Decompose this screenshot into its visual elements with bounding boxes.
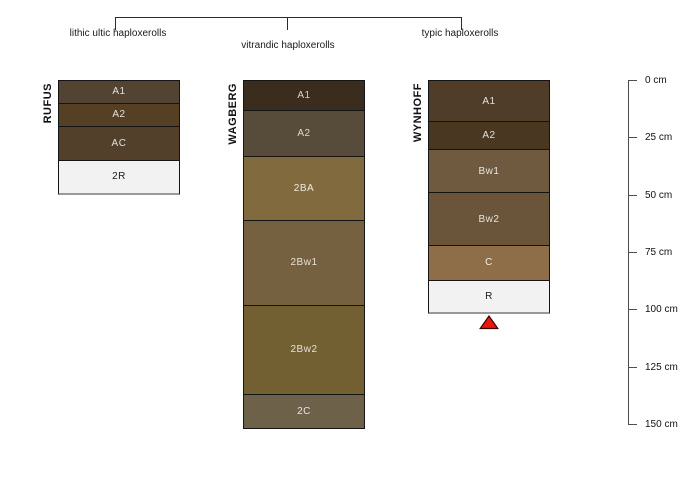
depth-axis-tick-label: 50 cm — [645, 191, 672, 201]
horizon-rufus-a2: A2 — [58, 103, 180, 126]
bracket-tick-middle — [287, 17, 288, 30]
taxon-label-vitrandic-haploxerolls: vitrandic haploxerolls — [241, 40, 334, 51]
horizon-label: A1 — [112, 86, 125, 97]
horizon-rufus-ac: AC — [58, 126, 180, 160]
taxon-label-lithic-ultic-haploxerolls: lithic ultic haploxerolls — [70, 28, 167, 39]
profile-name-wynhoff: WYNHOFF — [412, 79, 426, 149]
horizon-label: Bw2 — [479, 214, 500, 225]
horizon-label: A2 — [112, 109, 125, 120]
depth-axis-tick — [628, 424, 637, 425]
horizon-label: AC — [112, 138, 127, 149]
horizon-label: 2Bw1 — [290, 257, 317, 268]
horizon-wynhoff-bw2: Bw2 — [428, 192, 550, 245]
horizon-label: A2 — [482, 130, 495, 141]
profile-name-label: WYNHOFF — [412, 83, 424, 142]
bracket-horizontal-line — [115, 17, 462, 18]
pedon-marker-triangle-icon — [479, 315, 499, 330]
horizon-wynhoff-a1: A1 — [428, 80, 550, 121]
depth-axis-tick-label: 150 cm — [645, 420, 678, 430]
horizon-wynhoff-c: C — [428, 245, 550, 279]
depth-axis-tick-label: 125 cm — [645, 363, 678, 373]
horizon-label: C — [485, 257, 493, 268]
horizon-wynhoff-bw1: Bw1 — [428, 149, 550, 193]
horizon-wagberg-2bw2: 2Bw2 — [243, 305, 365, 394]
horizon-wagberg-a2: A2 — [243, 110, 365, 156]
horizon-label: 2C — [297, 406, 311, 417]
profile-name-wagberg: WAGBERG — [227, 79, 241, 149]
depth-axis-tick — [628, 195, 637, 196]
horizon-rufus-2r: 2R — [58, 160, 180, 194]
horizon-wagberg-2ba: 2BA — [243, 156, 365, 220]
depth-axis-tick — [628, 367, 637, 368]
horizon-label: A1 — [297, 90, 310, 101]
depth-axis-tick — [628, 252, 637, 253]
depth-axis-tick — [628, 137, 637, 138]
depth-axis-tick — [628, 80, 637, 81]
profile-name-label: RUFUS — [42, 83, 54, 123]
horizon-label: 2Bw2 — [290, 344, 317, 355]
horizon-wynhoff-r: R — [428, 280, 550, 314]
profile-name-rufus: RUFUS — [42, 79, 56, 149]
horizon-wagberg-2c: 2C — [243, 394, 365, 428]
depth-axis-tick-label: 25 cm — [645, 133, 672, 143]
taxon-label-typic-haploxerolls: typic haploxerolls — [422, 28, 499, 39]
soil-profile-plot: lithic ultic haploxerolls vitrandic hapl… — [0, 0, 700, 500]
horizon-wagberg-a1: A1 — [243, 80, 365, 110]
depth-axis-tick-label: 100 cm — [645, 305, 678, 315]
horizon-label: A2 — [297, 128, 310, 139]
horizon-label: A1 — [482, 96, 495, 107]
horizon-label: Bw1 — [479, 166, 500, 177]
depth-axis-tick-label: 0 cm — [645, 76, 667, 86]
horizon-label: 2BA — [294, 183, 314, 194]
profile-name-label: WAGBERG — [227, 83, 239, 145]
horizon-label: 2R — [112, 171, 126, 182]
depth-axis-tick — [628, 309, 637, 310]
horizon-label: R — [485, 291, 493, 302]
horizon-rufus-a1: A1 — [58, 80, 180, 103]
horizon-wagberg-2bw1: 2Bw1 — [243, 220, 365, 305]
depth-axis-tick-label: 75 cm — [645, 248, 672, 258]
horizon-wynhoff-a2: A2 — [428, 121, 550, 149]
